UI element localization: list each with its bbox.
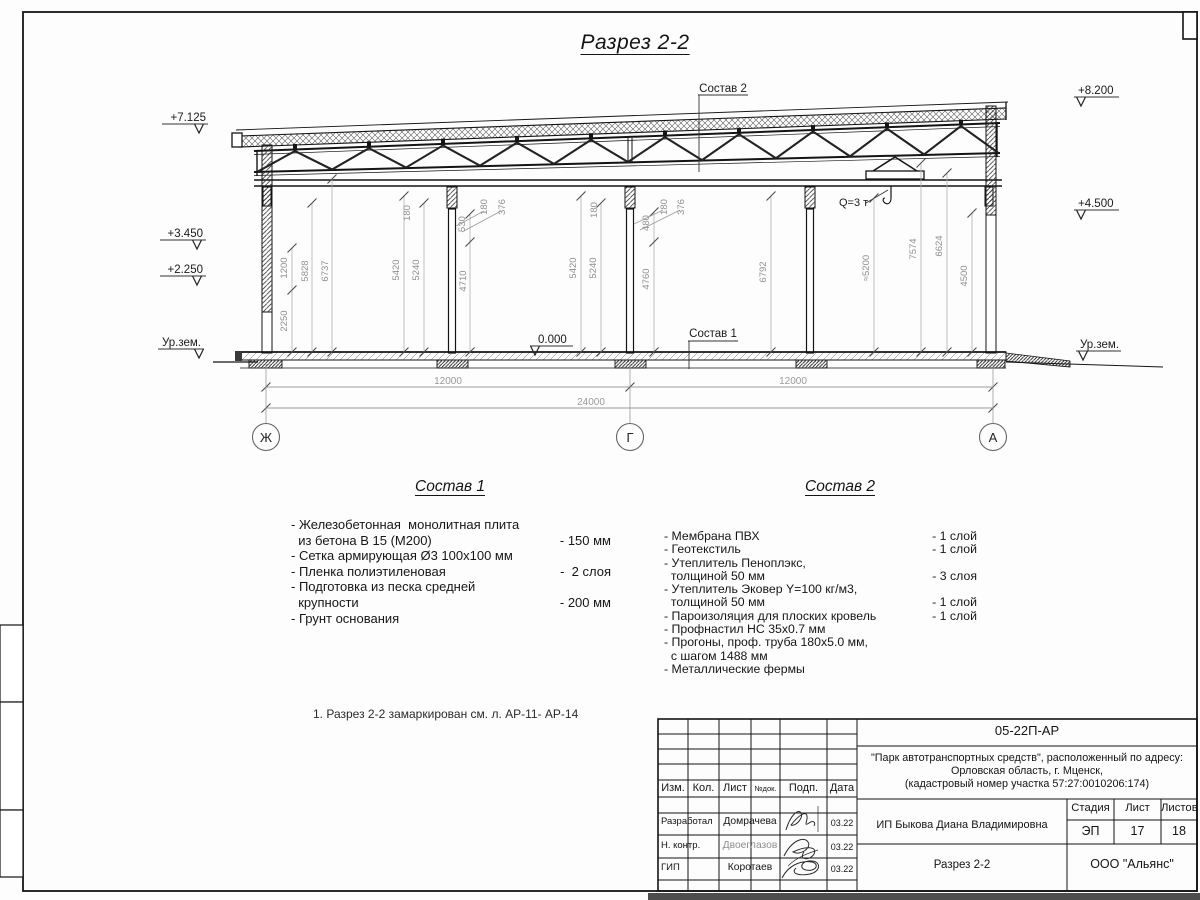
stage-label: Стадия	[1067, 802, 1114, 815]
comp-item-text: - Геотекстиль	[664, 543, 741, 556]
building-section	[213, 102, 1163, 368]
composition-1-list: - Железобетонная монолитная плита из бет…	[291, 517, 611, 626]
comp-item-value: - 1 слой	[932, 596, 977, 609]
dim-label: 1200	[279, 257, 290, 278]
comp-item-text: - Профнастил НС 35х0.7 мм	[664, 623, 825, 636]
comp1-row: - Сетка армирующая Ø3 100х100 мм	[291, 548, 611, 564]
comp-item-value: - 1 слой	[932, 610, 977, 623]
drawing-sheet: { "sheet": { "title": "Разрез 2-2", "not…	[0, 0, 1200, 900]
comp-item-text: крупности	[291, 595, 359, 611]
comp-item-value: - 200 мм	[560, 595, 611, 611]
comp2-row: - Утеплитель Эковер Y=100 кг/м3,	[664, 583, 977, 596]
elevation-mark: +4.500	[1078, 198, 1114, 210]
col-ndok: №док.	[751, 785, 780, 793]
stage-value: ЭП	[1067, 824, 1114, 838]
comp-item-text: - Подготовка из песка средней	[291, 579, 475, 595]
col-data: Дата	[827, 782, 857, 794]
dim-label: 6792	[758, 261, 769, 282]
dim-label: 180	[402, 205, 413, 221]
doc-number: 05-22П-АР	[857, 724, 1197, 739]
dim-label: 480	[641, 215, 652, 231]
comp-item-text: с шагом 1488 мм	[664, 650, 768, 663]
elevation-mark: +2.250	[168, 264, 204, 276]
comp1-row: - Пленка полиэтиленовая- 2 слоя	[291, 564, 611, 580]
comp-item-text: - Сетка армирующая Ø3 100х100 мм	[291, 548, 513, 564]
signature	[786, 812, 815, 830]
comp-item-text: - Прогоны, проф. труба 180х5.0 мм,	[664, 636, 868, 649]
comp2-row: - Мембрана ПВХ- 1 слой	[664, 530, 977, 543]
crane-capacity-label: Q=3 т	[839, 197, 868, 209]
composition-1-title: Состав 1	[385, 478, 515, 495]
dim-label: 5420	[568, 257, 579, 278]
col-podp: Подп.	[780, 782, 827, 794]
col-list: Лист	[719, 782, 751, 794]
dim-label: 4500	[959, 265, 970, 286]
dim-label: 24000	[577, 397, 605, 408]
comp2-row: - Геотекстиль- 1 слой	[664, 543, 977, 556]
zero-elevation-mark: 0.000	[538, 334, 567, 346]
drawing-name: Разрез 2-2	[857, 859, 1067, 872]
comp-item-text: - Железобетонная монолитная плита	[291, 517, 519, 533]
dim-label: 376	[676, 199, 687, 215]
dim-label: 5240	[588, 257, 599, 278]
dim-label: 4710	[458, 270, 469, 291]
sign-role-2: Н. контр.	[661, 841, 700, 852]
comp1-row: - Подготовка из песка средней	[291, 579, 611, 595]
comp-item-text: - Пароизоляция для плоских кровель	[664, 610, 876, 623]
dim-label: 180	[589, 202, 600, 218]
comp2-row: - Пароизоляция для плоских кровель- 1 сл…	[664, 610, 977, 623]
sign-role-3: ГИП	[661, 863, 680, 874]
sign-date-1: 03.22	[827, 818, 857, 828]
comp-item-text: толщиной 50 мм	[664, 570, 765, 583]
dim-label: 5420	[391, 259, 402, 280]
comp2-row: - Прогоны, проф. труба 180х5.0 мм,	[664, 636, 977, 649]
dim-label: 7574	[908, 238, 919, 259]
elevation-mark: +3.450	[168, 228, 204, 240]
sheet-note: 1. Разрез 2-2 замаркирован см. л. АР-11-…	[313, 708, 578, 721]
dim-label: 376	[497, 199, 508, 215]
composition-2-title: Состав 2	[775, 478, 905, 495]
axis-letter: Г	[626, 430, 633, 445]
comp2-row: толщиной 50 мм- 1 слой	[664, 596, 977, 609]
comp-item-text: толщиной 50 мм	[664, 596, 765, 609]
sheet-value: 17	[1114, 824, 1161, 838]
project-line-3: (кадастровый номер участка 57:27:0010206…	[859, 778, 1195, 790]
sign-name-1: Домрачева	[719, 816, 781, 828]
comp1-row: - Грунт основания	[291, 611, 611, 627]
comp1-row: крупности- 200 мм	[291, 595, 611, 611]
dim-label: 180	[479, 199, 490, 215]
comp2-row: толщиной 50 мм- 3 слоя	[664, 570, 977, 583]
sign-date-3: 03.22	[827, 864, 857, 874]
comp-item-value: - 1 слой	[932, 530, 977, 543]
dim-label: 12000	[434, 376, 462, 387]
axis-letter: А	[989, 430, 998, 445]
col-kol: Кол.	[688, 782, 719, 794]
signature	[782, 861, 819, 878]
col-izm: Изм.	[658, 782, 688, 794]
sheets-value: 18	[1161, 824, 1197, 838]
comp-item-text: - Утеплитель Эковер Y=100 кг/м3,	[664, 583, 857, 596]
dim-label: 5240	[411, 259, 422, 280]
comp-item-text: - Утеплитель Пеноплэкс,	[664, 557, 806, 570]
sign-role-1: Разработал	[661, 817, 713, 828]
project-line-1: "Парк автотранспортных средств", располо…	[859, 752, 1195, 764]
ground-level-mark: Ур.зем.	[1080, 339, 1119, 351]
comp-item-value: - 150 мм	[560, 533, 611, 549]
ground-level-mark: Ур.зем.	[162, 337, 201, 349]
comp1-row: - Железобетонная монолитная плита	[291, 517, 611, 533]
comp1-row: из бетона В 15 (М200)- 150 мм	[291, 533, 611, 549]
dim-label: 5828	[300, 260, 311, 281]
comp2-row: - Утеплитель Пеноплэкс,	[664, 557, 977, 570]
composition-2-list: - Мембрана ПВХ- 1 слой- Геотекстиль- 1 с…	[664, 530, 977, 676]
comp-item-text: - Грунт основания	[291, 611, 399, 627]
company-name: ООО "Альянс"	[1067, 857, 1197, 871]
elevation-mark: +8.200	[1078, 85, 1114, 97]
dim-label: 180	[659, 199, 670, 215]
page-title: Разрез 2-2	[560, 31, 710, 55]
comp-item-text: - Металлические фермы	[664, 663, 805, 676]
elevation-mark: +7.125	[171, 112, 207, 124]
comp-item-text: из бетона В 15 (М200)	[291, 533, 432, 549]
comp-item-value: - 1 слой	[932, 543, 977, 556]
comp2-row: - Металлические фермы	[664, 663, 977, 676]
comp2-row: - Профнастил НС 35х0.7 мм	[664, 623, 977, 636]
client-name: ИП Быкова Диана Владимировна	[860, 819, 1064, 831]
signature	[784, 839, 815, 858]
comp-item-value: - 3 слоя	[932, 570, 977, 583]
comp-item-text: - Пленка полиэтиленовая	[291, 564, 446, 580]
dim-label: 6737	[320, 260, 331, 281]
sign-name-2: Двоеглазов	[719, 840, 781, 852]
sign-name-3: Коротаев	[719, 862, 781, 874]
sign-date-2: 03.22	[827, 842, 857, 852]
comp2-row: с шагом 1488 мм	[664, 650, 977, 663]
dim-label: 12000	[779, 376, 807, 387]
callout-bottom: Состав 1	[689, 328, 737, 340]
dim-label: ≈5200	[861, 255, 872, 281]
dim-label: 2250	[279, 310, 290, 331]
dim-label: 530	[457, 216, 468, 232]
sheets-label: Листов	[1161, 802, 1197, 815]
axis-letter: Ж	[260, 430, 272, 445]
dim-label: 4760	[641, 268, 652, 289]
comp-item-text: - Мембрана ПВХ	[664, 530, 760, 543]
comp-item-value: - 2 слоя	[560, 564, 611, 580]
sheet-label: Лист	[1114, 802, 1161, 815]
dim-label: 6624	[934, 235, 945, 256]
project-line-2: Орловская область, г. Мценск,	[859, 765, 1195, 777]
callout-top: Состав 2	[699, 83, 747, 95]
